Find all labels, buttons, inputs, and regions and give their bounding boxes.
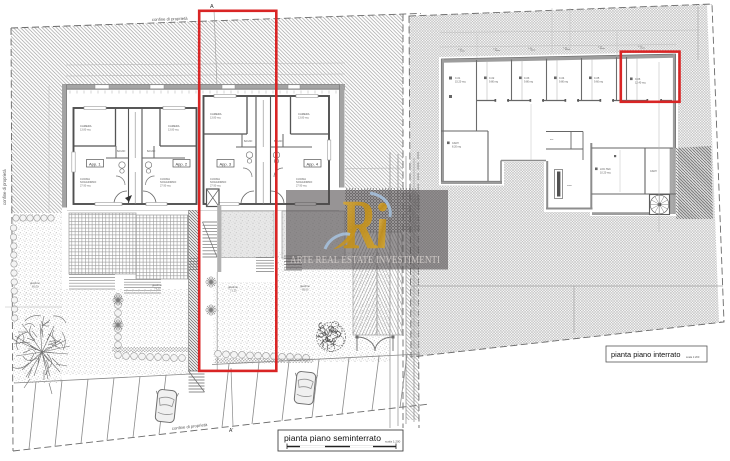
svg-text:27.90 mq: 27.90 mq [210,184,221,187]
svg-text:8.20 mq: 8.20 mq [452,145,462,148]
svg-text:vano: vano [567,185,573,187]
svg-text:R: R [343,186,379,264]
svg-text:pianta piano seminterrato: pianta piano seminterrato [284,433,381,443]
svg-text:asc.: asc. [550,139,554,141]
svg-text:A': A' [229,428,233,434]
svg-text:App. 4: App. 4 [307,161,319,166]
svg-text:13.80 mq: 13.80 mq [168,129,179,132]
svg-text:27.90 mq: 27.90 mq [160,184,171,187]
svg-text:9.80 mq: 9.80 mq [524,80,534,83]
svg-text:giardino: giardino [300,284,310,288]
svg-text:scala 1:200: scala 1:200 [385,440,401,444]
svg-text:15.20 mq: 15.20 mq [455,80,466,83]
svg-text:88.00: 88.00 [302,288,309,292]
svg-text:CAMERA: CAMERA [210,112,222,116]
svg-text:App. 3: App. 3 [220,161,232,166]
svg-text:27.90 mq: 27.90 mq [296,184,307,187]
svg-text:74.30: 74.30 [154,287,161,291]
svg-text:BAGNO: BAGNO [244,140,253,143]
svg-text:giardino: giardino [152,283,162,287]
svg-text:71.20: 71.20 [230,289,237,293]
svg-text:13.80 mq: 13.80 mq [80,129,91,132]
svg-text:10.20 mq: 10.20 mq [600,171,611,174]
svg-text:12.40 mq: 12.40 mq [635,81,646,84]
svg-text:BAGNO: BAGNO [117,150,126,153]
svg-text:9.80 mq: 9.80 mq [559,80,569,83]
svg-text:App. 2: App. 2 [176,161,188,166]
svg-text:CAMERA: CAMERA [298,112,310,116]
svg-text:9.80 mq: 9.80 mq [489,80,499,83]
svg-text:giardino: giardino [30,281,40,285]
svg-text:pianta piano interrato: pianta piano interrato [611,350,680,359]
svg-text:95.00: 95.00 [32,285,39,289]
svg-text:9.60 mq: 9.60 mq [594,80,604,83]
svg-text:CAMERA: CAMERA [80,124,92,128]
svg-text:A: A [210,4,214,10]
svg-text:ARTE REAL ESTATE INVESTIMENTI: ARTE REAL ESTATE INVESTIMENTI [290,255,440,266]
svg-text:13.80 mq: 13.80 mq [298,117,309,120]
svg-text:13.80 mq: 13.80 mq [210,117,221,120]
svg-text:scala 1:200: scala 1:200 [686,355,700,359]
svg-text:App. 1: App. 1 [89,161,101,166]
svg-text:CANT.: CANT. [650,170,658,173]
svg-text:CAMERA: CAMERA [168,124,180,128]
svg-text:27.90 mq: 27.90 mq [80,184,91,187]
svg-text:BAGNO: BAGNO [147,150,156,153]
svg-text:confine di proprietà: confine di proprietà [2,169,7,205]
svg-text:giardino: giardino [228,285,238,289]
